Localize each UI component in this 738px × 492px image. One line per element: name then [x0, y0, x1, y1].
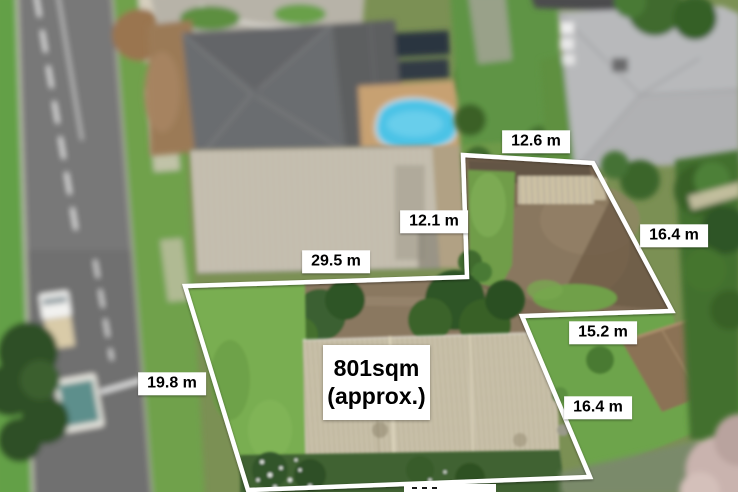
aerial-property-photo: 12.6 m 12.1 m 29.5 m 16.4 m 15.2 m 16.4 …: [0, 0, 738, 492]
measurement-label-rear-left: 12.1 m: [400, 210, 468, 233]
measurement-label-rear-bottom: 29.5 m: [302, 250, 370, 273]
measurement-label-bottom-clipped: [404, 484, 496, 492]
solar-panels: [395, 30, 451, 81]
measurement-label-mid-right: 15.2 m: [569, 321, 637, 344]
measurement-label-front-left: 19.8 m: [138, 372, 206, 395]
area-qualifier: (approx.): [327, 383, 425, 411]
area-label: 801sqm (approx.): [323, 345, 430, 420]
clipped-glyph-tops: [412, 487, 437, 489]
measurement-label-lower-right: 16.4 m: [564, 396, 632, 419]
area-value: 801sqm: [334, 355, 420, 383]
measurement-label-rear-top: 12.6 m: [502, 130, 570, 153]
measurement-label-rear-right: 16.4 m: [640, 224, 708, 247]
timber-pallets: [518, 176, 606, 204]
